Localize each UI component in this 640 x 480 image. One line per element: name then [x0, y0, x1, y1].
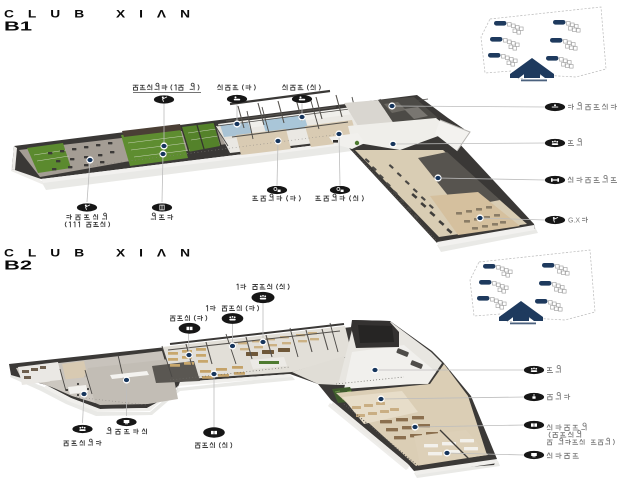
svg-text:G.X: G.X	[568, 218, 580, 225]
svg-text:CLUB XIΛN: CLUB XIΛN	[4, 9, 204, 21]
svg-text:B2: B2	[4, 259, 32, 273]
svg-text:CLUB XIΛN: CLUB XIΛN	[4, 248, 204, 260]
svg-text:B1: B1	[4, 20, 32, 34]
